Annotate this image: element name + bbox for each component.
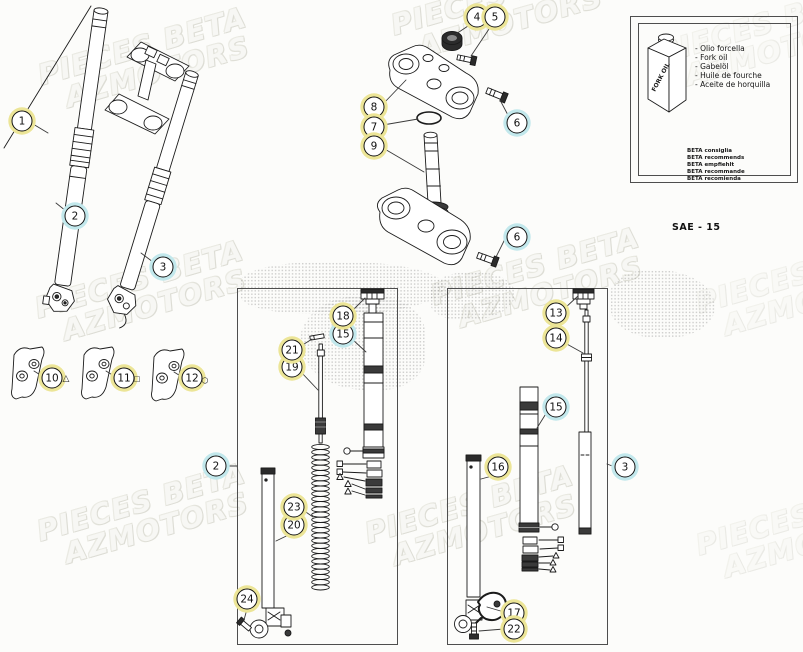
callout-21[interactable]: 21: [282, 340, 303, 361]
oil-name: - Huile de fourche: [695, 71, 803, 80]
triangle-marker: [550, 567, 556, 573]
callout-23[interactable]: 23: [284, 497, 305, 518]
callout-13[interactable]: 13: [546, 303, 567, 324]
circle-marker: [344, 448, 350, 454]
damper-rod-drawing-left: [316, 344, 326, 443]
triangle-marker: △: [63, 374, 70, 384]
bolt-drawing: [476, 251, 499, 268]
oil-name: - Gabelöl: [695, 62, 803, 71]
callout-5[interactable]: 5: [485, 7, 506, 28]
callout-18[interactable]: 18: [333, 306, 354, 327]
oil-recommendation: BETA recomienda: [687, 176, 803, 183]
bushing-seal-stack-right: [522, 537, 538, 571]
triangle-marker: [345, 481, 351, 487]
oil-name: - Fork oil: [695, 53, 803, 62]
circle-marker: [552, 524, 558, 530]
square-marker: □: [134, 375, 141, 383]
upper-triple-clamp-assembly-drawing: [377, 32, 508, 268]
callout-3-fork[interactable]: 3: [153, 257, 174, 278]
outer-tube-drawing-left: [250, 468, 291, 638]
diagram-artwork: FORK OIL: [0, 0, 803, 652]
bracket-drawing-10: [12, 347, 45, 399]
spring-drawing: [312, 444, 330, 590]
oil-name-list: - Olio forcella - Fork oil - Gabelöl - H…: [695, 44, 803, 89]
fork-cap-drawing-left: [361, 289, 384, 313]
callout-6-upper[interactable]: 6: [507, 113, 528, 134]
damper-rod-drawing-right: [579, 310, 592, 534]
callout-22[interactable]: 22: [504, 619, 525, 640]
square-marker: [337, 461, 343, 467]
oring-drawing: [417, 112, 441, 124]
callout-15-left[interactable]: 15: [333, 324, 354, 345]
axle-foot-drawing: [42, 283, 76, 314]
oil-recommendation-list: BETA consiglia BETA recommends BETA empf…: [687, 148, 803, 183]
callout-2-fork[interactable]: 2: [65, 206, 86, 227]
callout-7[interactable]: 7: [364, 117, 385, 138]
triangle-marker: [550, 560, 556, 566]
part-markers-right: [539, 524, 564, 572]
bottom-clamp-drawing: [377, 188, 470, 264]
callout-8[interactable]: 8: [364, 97, 385, 118]
bolt-drawing: [485, 86, 508, 103]
cartridge-drawing-right: [519, 387, 539, 532]
callout-20[interactable]: 20: [284, 515, 305, 536]
caliper-bracket-drawing: [473, 593, 506, 626]
callout-3-box[interactable]: 3: [615, 457, 636, 478]
fork-cap-drawing-right: [573, 289, 594, 309]
parts-diagram-page: PIECES BETAAZMOTORS PIECES BETAAZMOTORS …: [0, 0, 803, 652]
oil-recommendation: BETA consiglia: [687, 148, 803, 155]
oil-bottle-drawing: FORK OIL: [648, 34, 686, 112]
callout-6-lower[interactable]: 6: [507, 227, 528, 248]
callout-24[interactable]: 24: [237, 589, 258, 610]
oil-name: - Olio forcella: [695, 44, 803, 53]
cartridge-drawing-left: [363, 313, 384, 458]
fork-assembly-drawing: [4, 6, 206, 331]
oil-recommendation: BETA empfiehlt: [687, 162, 803, 169]
oil-grade: SAE - 15: [672, 222, 803, 233]
square-marker: [558, 545, 564, 551]
bushing-seal-stack-left: [366, 461, 382, 498]
triangle-marker: [345, 488, 351, 494]
square-marker: [558, 537, 564, 543]
callout-14[interactable]: 14: [546, 328, 567, 349]
part-markers-left: [337, 448, 366, 495]
callout-2-box[interactable]: 2: [206, 456, 227, 477]
triangle-marker: [553, 553, 559, 559]
callout-1[interactable]: 1: [12, 111, 33, 132]
callout-11[interactable]: 11: [114, 368, 135, 389]
bolt-drawing: [456, 53, 476, 66]
oil-recommendation: BETA recommends: [687, 155, 803, 162]
callout-15-right[interactable]: 15: [546, 397, 567, 418]
callout-16[interactable]: 16: [488, 457, 509, 478]
oil-recommendation: BETA recommande: [687, 169, 803, 176]
axle-foot-drawing: [100, 284, 139, 331]
circle-marker: ○: [202, 376, 209, 385]
callout-12[interactable]: 12: [182, 368, 203, 389]
oil-name: - Aceite de horquilla: [695, 80, 803, 89]
callout-9[interactable]: 9: [364, 136, 385, 157]
steering-nut-drawing: [442, 32, 462, 51]
callout-10[interactable]: 10: [42, 368, 63, 389]
